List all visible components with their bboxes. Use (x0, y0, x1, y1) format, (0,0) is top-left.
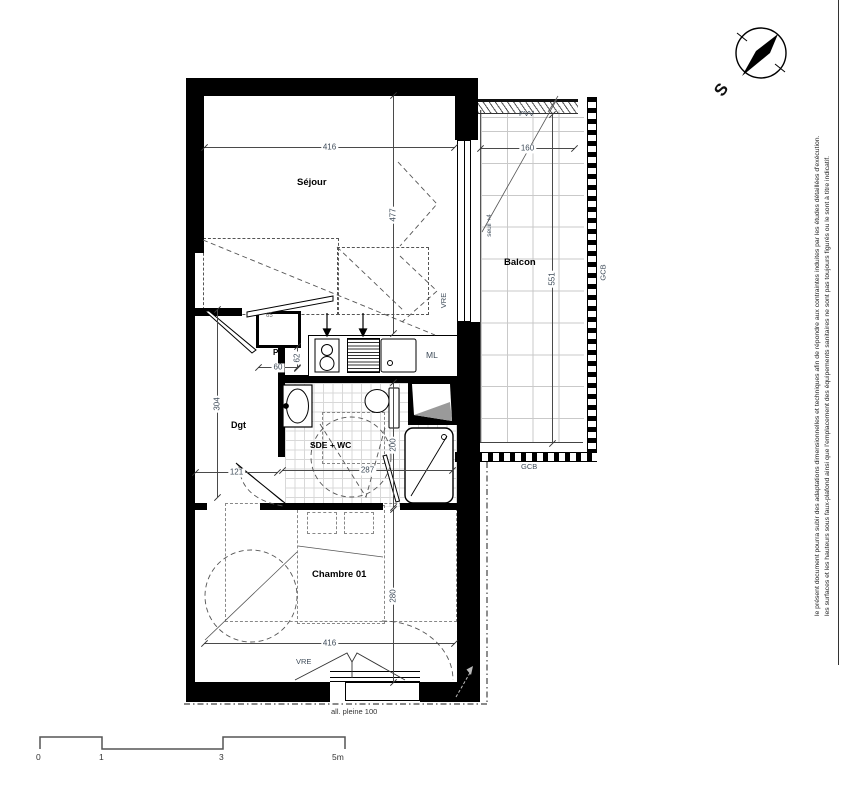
scale-tick-0: 0 (36, 752, 41, 762)
scale-bar (40, 737, 345, 749)
room-label-sde: SDE + WC (310, 440, 351, 450)
label-pvv: PVV (519, 109, 534, 118)
room-label-pl: Pl (273, 348, 281, 357)
bathroom-sink (283, 385, 312, 427)
label-ml: ML (426, 350, 438, 360)
duct-insert (412, 384, 452, 421)
room-label-sejour: Séjour (297, 177, 327, 188)
label-seuil: seuil +4 (486, 214, 493, 237)
room-label-dgt: Dgt (231, 420, 246, 430)
scale-tick-3: 3 (219, 752, 224, 762)
dim-dgt-height: 304 (217, 310, 218, 497)
entry-arrow-icon (456, 666, 473, 697)
casement-symbol (295, 653, 405, 680)
scale-tick-1: 1 (99, 752, 104, 762)
compass-rose (736, 28, 786, 78)
cooktop (315, 339, 339, 372)
dim-sejour-width: 416 (204, 147, 455, 148)
floor-plan-sheet: Séjour Balcon Chambre 01 SDE + WC Dgt Pl… (0, 0, 845, 800)
label-gcb-bottom: GCB (521, 462, 537, 471)
dim-dgt-width: 121 (195, 472, 278, 473)
label-vre-chambre: VRE (296, 657, 311, 666)
scale-tick-5m: 5m (332, 752, 344, 762)
dim-sde-width: 287 (282, 470, 453, 471)
label-vre-sejour: VRE (439, 293, 448, 308)
dim-chambre-height: 280 (393, 510, 394, 682)
label-allege: all. pleine 100 (331, 707, 377, 716)
room-label-balcon: Balcon (504, 257, 536, 268)
kitchen-sink (381, 339, 416, 372)
plan-vector-overlay (0, 0, 845, 800)
room-label-chambre: Chambre 01 (312, 569, 366, 580)
dim-sde-height: 200 (393, 383, 394, 507)
dim-pl-height: 62 (297, 347, 298, 368)
dim-chambre-width: 416 (204, 643, 455, 644)
supply-arrow-icons (324, 313, 367, 336)
dim-balcon-height: 551 (552, 115, 553, 443)
label-pl-door-dim: 65 (266, 313, 273, 319)
dim-balcon-width: 160 (480, 148, 575, 149)
dim-pl-width: 60 (258, 367, 298, 368)
dim-sejour-height: 477 (393, 96, 394, 333)
label-gcb-right: GCB (599, 264, 608, 280)
disclaimer-line1: le présent document pourra subir des ada… (813, 4, 822, 616)
disclaimer-line2: les surfaces et les hauteurs sous faux-p… (823, 4, 832, 616)
shower-tray (405, 428, 453, 503)
